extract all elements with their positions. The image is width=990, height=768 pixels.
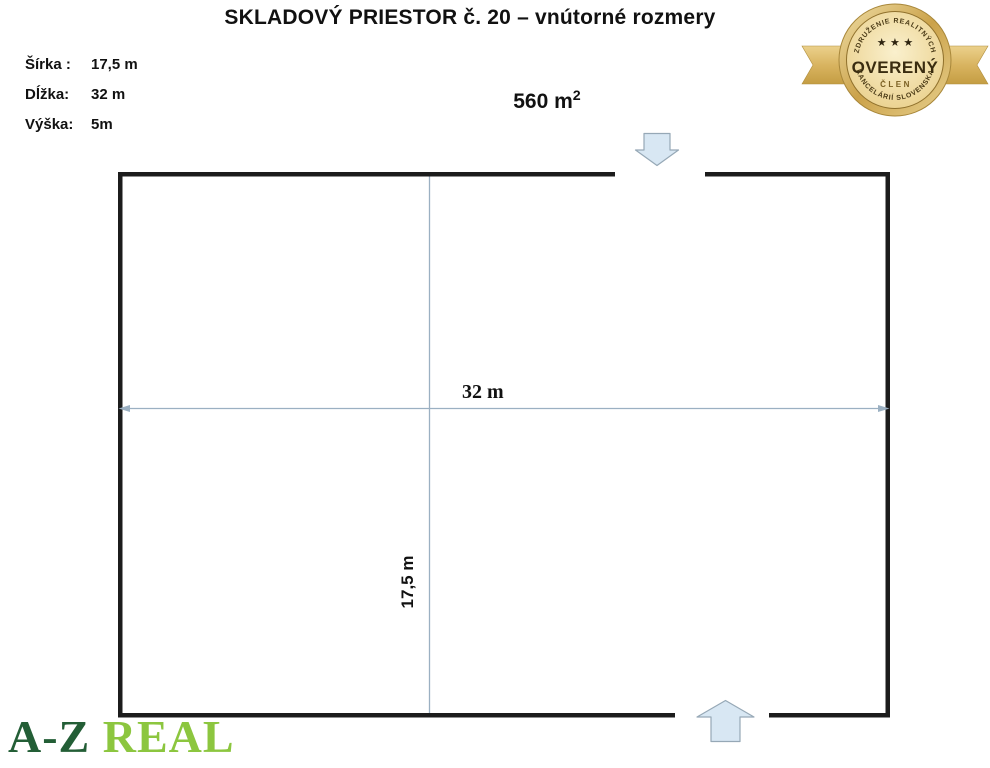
membership-badge: ZDRUŽENIE REALITNÝCH KANCELÁRIÍ SLOVENSK… — [800, 0, 990, 125]
wall-right — [886, 172, 891, 718]
floor-plan-walls — [118, 172, 890, 718]
wall-top-left-segment — [118, 172, 615, 177]
height-dimension-label: 17,5 m — [398, 539, 420, 625]
logo-part-secondary: REAL — [103, 711, 235, 762]
width-dimension-label: 32 m — [462, 381, 504, 404]
logo-part-primary: A-Z — [8, 711, 90, 762]
badge-sub-text: ČLEN — [880, 80, 912, 89]
wall-left — [118, 172, 123, 718]
company-logo: A-Z REAL — [8, 710, 235, 763]
entrance-arrow-bottom-icon — [697, 701, 754, 742]
wall-top-right-segment — [705, 172, 890, 177]
badge-stars-icon: ★ ★ ★ — [877, 36, 914, 49]
entrance-arrow-top-icon — [636, 134, 679, 166]
page-root: SKLADOVÝ PRIESTOR č. 20 – vnútorné rozme… — [0, 0, 990, 768]
wall-bottom-right-segment — [769, 713, 890, 718]
badge-main-text: OVERENÝ — [852, 58, 939, 77]
